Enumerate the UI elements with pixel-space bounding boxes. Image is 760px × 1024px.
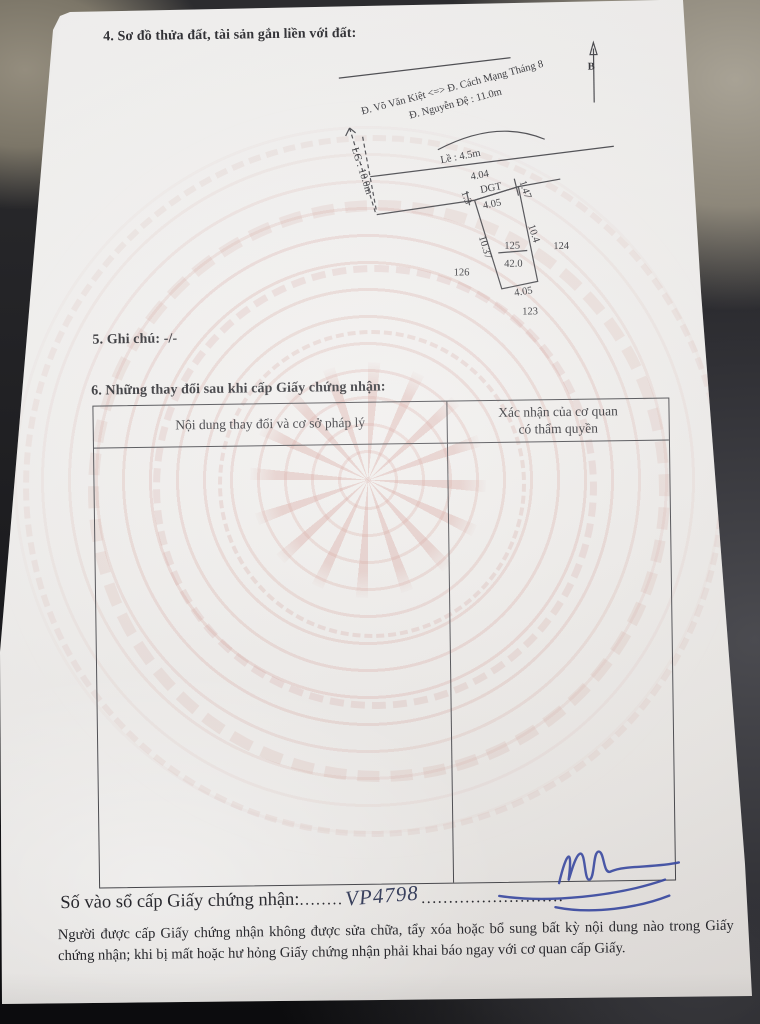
parcel-right-length: 10.4 (525, 223, 542, 245)
registry-number-handwritten: VP4798 (344, 881, 419, 912)
neighbor-parcel-123: 123 (522, 306, 538, 317)
parcel-left-length: 10.37 (476, 235, 493, 261)
sidewalk-line (370, 146, 614, 176)
signature-ink (497, 841, 688, 918)
parcel-number: 125 (504, 241, 520, 252)
page-content: 4. Sơ đồ thửa đất, tài sản gắn liền với … (0, 0, 760, 1024)
footer-notice: Người được cấp Giấy chứng nhận không đượ… (58, 916, 735, 967)
north-label: B (588, 62, 595, 73)
parcel-bottom-length: 4.05 (514, 285, 534, 299)
strip-left-length: 1.3 (459, 190, 474, 206)
table-header-confirmation-line1: Xác nhận của cơ quan (498, 403, 618, 422)
parcel-top-length: 4.05 (482, 197, 502, 211)
section4-title: 4. Sơ đồ thửa đất, tài sản gắn liền với … (103, 26, 356, 46)
certificate-paper: 4. Sơ đồ thửa đất, tài sản gắn liền với … (0, 0, 760, 1024)
neighbor-parcel-124: 124 (553, 241, 570, 252)
table-header-content: Nội dung thay đổi và cơ sở pháp lý (93, 402, 447, 449)
road-widening-label: LG : 10.0m (349, 146, 374, 196)
north-arrow-icon: B (587, 43, 597, 103)
parcel-area: 42.0 (504, 259, 523, 270)
road-curve (438, 131, 545, 150)
registry-label: Số vào sổ cấp Giấy chứng nhận: (60, 890, 299, 913)
dgt-label: DGT (479, 181, 503, 196)
parcel-diagram: B Đ. Võ Văn Kiệt <=> Đ. Cách Mạng Tháng … (330, 32, 664, 337)
photo-frame: 4. Sơ đồ thửa đất, tài sản gắn liền với … (0, 0, 760, 1024)
table-header-confirmation: Xác nhận của cơ quan có thẩm quyền (446, 399, 669, 444)
table-body-content-cell (94, 444, 453, 888)
frontage-length: 4.04 (470, 168, 491, 182)
section5-note: 5. Ghi chú: -/- (92, 331, 177, 348)
section6-title: 6. Những thay đổi sau khi cấp Giấy chứng… (91, 379, 386, 399)
table-header-confirmation-line2: có thẩm quyền (518, 420, 598, 438)
changes-table: Nội dung thay đổi và cơ sở pháp lý Xác n… (92, 398, 676, 889)
table-body-confirmation-cell (447, 441, 675, 883)
dotted-leader: ........ (299, 891, 343, 909)
neighbor-parcel-126: 126 (454, 267, 470, 278)
